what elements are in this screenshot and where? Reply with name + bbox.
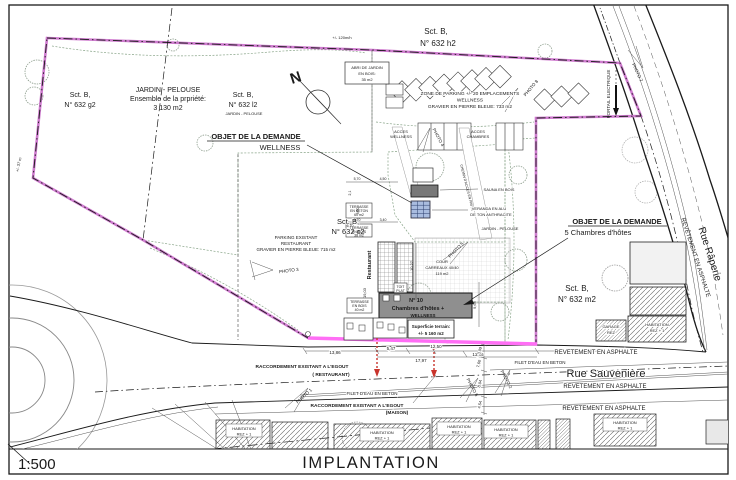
habitation-4b: REZ + 1 — [499, 433, 515, 438]
filet-eau-1: FILET D'EAU EN BETON — [347, 391, 398, 396]
dim-2-1: 2,1 — [348, 191, 352, 196]
parking-wellness-3: GRAVIER EN PIERRE BLEUE: 733 m2 — [428, 104, 512, 110]
superficie-1: Superficie terrain: — [412, 324, 451, 329]
habitation-2b: REZ + 1 — [375, 436, 391, 441]
dim-17-97: 17,97 — [415, 358, 427, 363]
parcel-h2-num: N° 632 h2 — [420, 39, 456, 48]
habitation-3a: HABITATION — [447, 424, 471, 429]
parcel-g2-sct: Sct. B, — [70, 92, 91, 99]
habitation-4a: HABITATION — [494, 427, 518, 432]
sauna-building — [411, 185, 438, 197]
habitation-east-b: REZ + 1 — [650, 328, 666, 333]
dim-3-00: 3,00 — [356, 208, 360, 215]
dim-5-70b: 5,70 — [354, 218, 361, 222]
abri-label-3: 35 m2 — [361, 77, 373, 82]
abri-label-1: ABRI DE JARDIN — [351, 65, 383, 70]
terrasse-bois38-3: 38 m2 — [354, 234, 364, 238]
toit-plat-2: PLAT — [396, 289, 405, 293]
revetement-2: REVETEMENT EN ASPHALTE — [563, 384, 646, 390]
parking-wellness-1: ZONE DE PARKING +/- 20 EMPLACEMENTS — [421, 91, 520, 97]
habitation-east-a: HABITATION — [645, 322, 669, 327]
habitation-3b: REZ + 1 — [452, 430, 468, 435]
dim-6-70: 6,70 — [347, 224, 354, 228]
parcel-h2-sct: Sct. B, — [424, 27, 448, 36]
habitation-1b: REZ + 1 — [237, 432, 253, 437]
parcel-l2-num: N° 632 l2 — [229, 101, 258, 109]
parking-wellness-2: WELLNESS — [457, 98, 483, 104]
site-plan-drawing: N Sct. B, N° 632 g2 JARDIN - PELOUSE Ens… — [0, 0, 736, 480]
objet-wellness-sub: WELLNESS — [260, 143, 301, 152]
revetement-1: REVETEMENT EN ASPHALTE — [554, 350, 637, 356]
restaurant-label: Restaurant — [367, 250, 373, 279]
parcel-m2-num: N° 632 m2 — [558, 295, 596, 304]
veranda-label-2: DE TON ANTHRACITE — [470, 212, 512, 217]
terrasse-bois40-3: 40 m2 — [355, 308, 365, 312]
acces-chambres-2: CHAMBRES — [467, 134, 490, 139]
dim-13-86: 13,86 — [329, 350, 341, 355]
boundary-corner-marker — [306, 332, 311, 337]
building-name: Chambres d'hôtes + — [392, 306, 445, 312]
veranda-label-1: VERANDA EN ALU — [472, 206, 507, 211]
dim-3-40: 3,40 — [380, 218, 387, 222]
restaurant-building — [378, 242, 395, 292]
garden-label-2: Ensemble de la prpriété: — [130, 96, 206, 103]
dim-4-50: 4,50 — [380, 177, 387, 181]
habitation-2a: HABITATION — [370, 430, 394, 435]
parcel-g2-num: N° 632 g2 — [64, 101, 95, 109]
jardin-pelouse-small: JARDIN - PELOUSE — [482, 226, 519, 231]
raccordement-maison-1: RACCORDEMENT EXISTANT A L'EGOUT — [311, 403, 404, 409]
portail-electrique-label: PORTAIL ELECTRIQUE — [606, 70, 611, 119]
building-suffix: WELLNESS — [410, 313, 435, 318]
raccordement-maison-2: (MAISON) — [386, 410, 409, 416]
parcel-l2-type: JARDIN - PELOUSE — [226, 111, 263, 116]
filet-eau-2: FILET D'EAU EN BETON — [515, 360, 566, 365]
dim-5-70a: 5,70 — [354, 177, 361, 181]
dim-9-65: 9,65 — [472, 300, 477, 309]
garage-label-1: GARAGE — [602, 324, 619, 329]
superficie-2: +/- 5 160 m2 — [418, 331, 444, 336]
sauna-label: SAUNA EN BOIS — [484, 187, 515, 192]
revetement-3: REVETEMENT EN ASPHALTE — [562, 406, 645, 412]
parcel-m2-sct: Sct. B, — [565, 284, 589, 293]
annex-box — [413, 168, 433, 182]
rue-sauveniere-label: Rue Sauvenière — [567, 368, 646, 380]
cour-label-2: CARREAUX 40/40 — [425, 265, 459, 270]
abri-label-2: EN BOIS: — [358, 71, 375, 76]
objet-chambres-sub: 5 Chambres d'hôtes — [565, 228, 632, 237]
objet-wellness-title: OBJET DE LA DEMANDE — [211, 132, 300, 141]
dim-12-50: 12,50 — [430, 344, 442, 349]
habitation-5b: REZ + 1 — [618, 426, 634, 431]
acces-wellness-2: WELLNESS — [390, 134, 412, 139]
dim-5-47: 5,47 — [387, 346, 396, 351]
parking-restaurant-3: GRAVIER EN PIERRE BLEUE: 715 m2 — [257, 247, 336, 252]
habitation-1a: HABITATION — [232, 426, 256, 431]
dim-10-27: 10,27 — [409, 260, 414, 271]
parking-restaurant-1: PARKING EXISTANT — [275, 235, 318, 240]
parking-restaurant-2: RESTAURANT — [281, 241, 311, 246]
scale-label: 1:500 — [18, 456, 56, 473]
raccordement-restaurant-1: RACCORDEMENT EXISTANT A L'EGOUT — [256, 364, 349, 370]
plan-title: IMPLANTATION — [302, 454, 439, 472]
parcel-l2-sct: Sct. B, — [233, 92, 254, 99]
building-n10: N° 10 — [409, 298, 423, 304]
raccordement-restaurant-2: ( RESTAURANT) — [312, 372, 350, 378]
garage-label-2: REZ — [607, 330, 616, 335]
garden-length-note: +/- 120m/h — [332, 35, 351, 40]
garden-label-3: 3 130 m2 — [153, 105, 182, 112]
objet-chambres-title: OBJET DE LA DEMANDE — [572, 217, 661, 226]
cour-label-3: 119 m2 — [435, 271, 449, 276]
veranda-building — [411, 201, 430, 218]
dim-19-03: 19,03 — [362, 287, 367, 298]
habitation-5a: HABITATION — [613, 420, 637, 425]
cour-label-1: COUR — [436, 259, 448, 264]
garden-label-1: JARDIN - PELOUSE — [136, 87, 201, 94]
